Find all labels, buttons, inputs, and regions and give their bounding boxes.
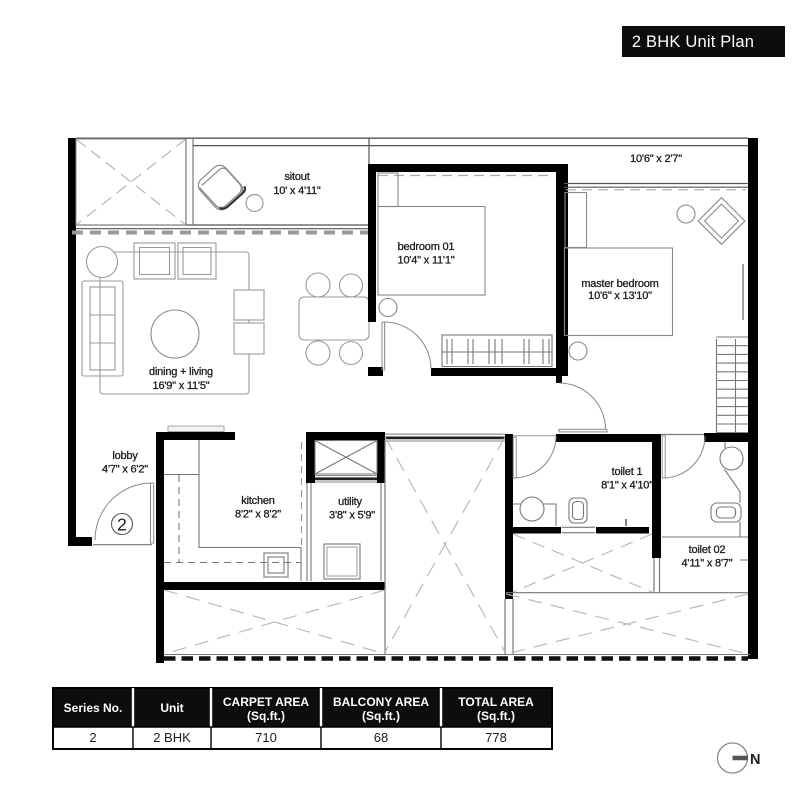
svg-text:778: 778 bbox=[485, 730, 507, 745]
svg-text:utility: utility bbox=[338, 496, 362, 508]
svg-text:10'4" x 11'1": 10'4" x 11'1" bbox=[398, 255, 455, 267]
svg-text:BALCONY AREA: BALCONY AREA bbox=[333, 695, 429, 709]
svg-text:toilet 1: toilet 1 bbox=[612, 466, 643, 478]
svg-text:4'7" x 6'2": 4'7" x 6'2" bbox=[102, 464, 148, 476]
svg-text:bedroom 01: bedroom 01 bbox=[398, 241, 455, 253]
svg-text:16'9" x 11'5": 16'9" x 11'5" bbox=[153, 380, 210, 392]
svg-text:master bedroom: master bedroom bbox=[581, 278, 658, 290]
svg-text:2: 2 bbox=[89, 730, 96, 745]
svg-text:toilet 02: toilet 02 bbox=[689, 544, 726, 556]
svg-text:8'2" x 8'2": 8'2" x 8'2" bbox=[235, 509, 281, 521]
svg-text:Unit: Unit bbox=[160, 701, 183, 715]
svg-text:68: 68 bbox=[374, 730, 388, 745]
svg-text:TOTAL AREA: TOTAL AREA bbox=[458, 695, 534, 709]
svg-text:710: 710 bbox=[255, 730, 277, 745]
svg-text:kitchen: kitchen bbox=[241, 495, 275, 507]
svg-text:2: 2 bbox=[117, 515, 127, 535]
svg-text:10' x 4'11": 10' x 4'11" bbox=[273, 185, 321, 197]
svg-text:2 BHK Unit Plan: 2 BHK Unit Plan bbox=[632, 33, 754, 51]
svg-text:sitout: sitout bbox=[284, 171, 309, 183]
svg-text:lobby: lobby bbox=[112, 450, 138, 462]
svg-text:4'11" x 8'7": 4'11" x 8'7" bbox=[682, 558, 733, 570]
svg-text:3'8" x 5'9": 3'8" x 5'9" bbox=[329, 510, 375, 522]
svg-text:N: N bbox=[750, 752, 760, 768]
svg-text:(Sq.ft.): (Sq.ft.) bbox=[477, 709, 515, 723]
svg-text:2 BHK: 2 BHK bbox=[153, 730, 191, 745]
svg-text:8'1" x 4'10": 8'1" x 4'10" bbox=[601, 480, 653, 492]
svg-text:CARPET AREA: CARPET AREA bbox=[223, 695, 310, 709]
svg-text:10'6" x 13'10": 10'6" x 13'10" bbox=[588, 290, 652, 302]
svg-text:(Sq.ft.): (Sq.ft.) bbox=[362, 709, 400, 723]
svg-text:dining + living: dining + living bbox=[149, 366, 213, 378]
svg-text:(Sq.ft.): (Sq.ft.) bbox=[247, 709, 285, 723]
svg-text:Series No.: Series No. bbox=[64, 701, 123, 715]
svg-text:10'6" x 2'7": 10'6" x 2'7" bbox=[630, 153, 682, 165]
